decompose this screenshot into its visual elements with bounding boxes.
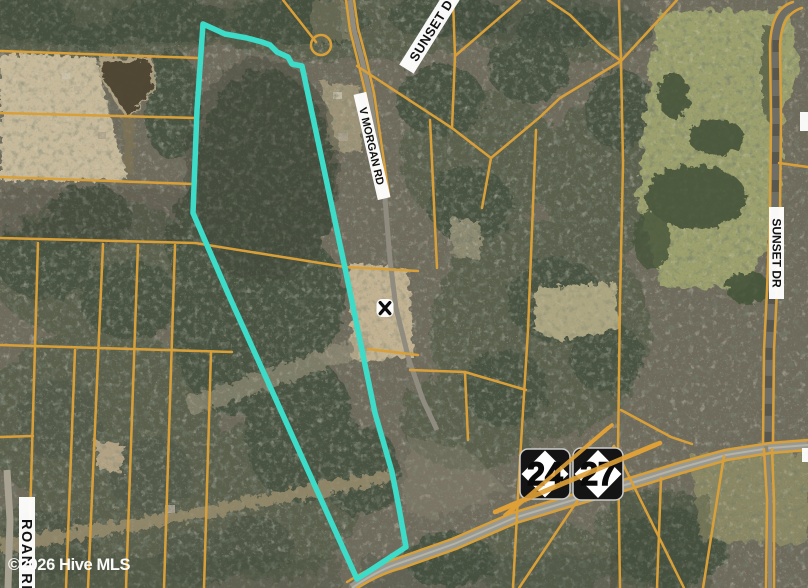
svg-text:SUNSET DR: SUNSET DR — [770, 218, 784, 288]
svg-text:©2026 Hive MLS: ©2026 Hive MLS — [8, 556, 131, 574]
svg-text:ROAN RD: ROAN RD — [18, 519, 34, 588]
